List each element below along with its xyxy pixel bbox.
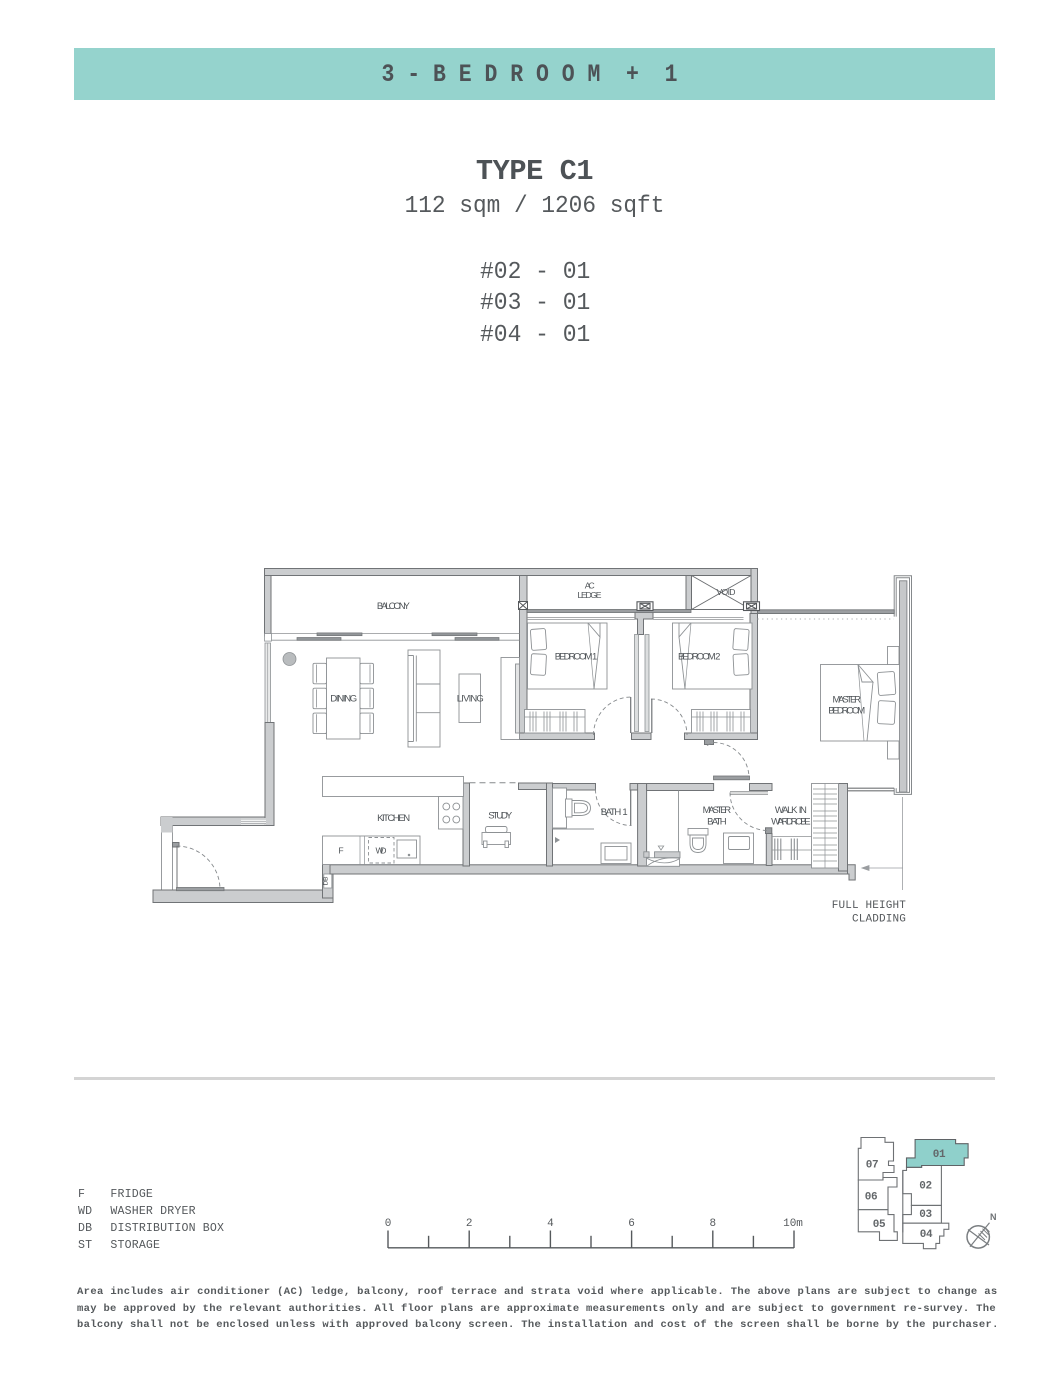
svg-text:05: 05 <box>873 1219 886 1231</box>
svg-text:BEDROOM 2: BEDROOM 2 <box>678 652 721 663</box>
svg-text:F: F <box>338 846 343 856</box>
svg-text:N: N <box>990 1212 997 1222</box>
svg-text:CLADDING: CLADDING <box>852 914 906 926</box>
svg-text:DINING: DINING <box>330 693 357 704</box>
svg-text:MASTER: MASTER <box>832 694 861 705</box>
svg-text:FULL HEIGHT: FULL HEIGHT <box>832 900 907 912</box>
svg-text:2: 2 <box>466 1218 473 1230</box>
svg-text:BALCONY: BALCONY <box>377 601 411 612</box>
svg-text:BEDROOM: BEDROOM <box>828 705 865 716</box>
svg-text:03: 03 <box>919 1209 932 1221</box>
svg-text:KITCHEN: KITCHEN <box>377 813 410 824</box>
svg-text:WD: WD <box>376 846 387 856</box>
svg-text:LIVING: LIVING <box>457 693 484 704</box>
svg-text:BATH 1: BATH 1 <box>601 807 628 818</box>
svg-text:AC: AC <box>585 581 595 591</box>
svg-text:07: 07 <box>866 1160 879 1172</box>
svg-text:BATH: BATH <box>707 817 727 828</box>
svg-text:06: 06 <box>865 1192 878 1204</box>
svg-text:6: 6 <box>628 1218 635 1230</box>
svg-text:MASTER: MASTER <box>703 805 732 816</box>
svg-text:WALK IN: WALK IN <box>775 805 807 816</box>
svg-text:0: 0 <box>385 1218 392 1230</box>
svg-text:01: 01 <box>933 1149 946 1161</box>
svg-text:DB: DB <box>323 876 330 885</box>
svg-text:STUDY: STUDY <box>488 811 513 822</box>
svg-text:VOID: VOID <box>717 587 736 597</box>
svg-text:BEDROOM 1: BEDROOM 1 <box>555 652 598 663</box>
svg-text:10m: 10m <box>783 1218 803 1230</box>
svg-text:WARDROBE: WARDROBE <box>771 817 811 828</box>
svg-text:04: 04 <box>920 1229 933 1241</box>
svg-text:02: 02 <box>919 1181 932 1193</box>
svg-text:LEDGE: LEDGE <box>578 590 602 600</box>
svg-text:8: 8 <box>709 1218 716 1230</box>
svg-text:4: 4 <box>547 1218 554 1230</box>
